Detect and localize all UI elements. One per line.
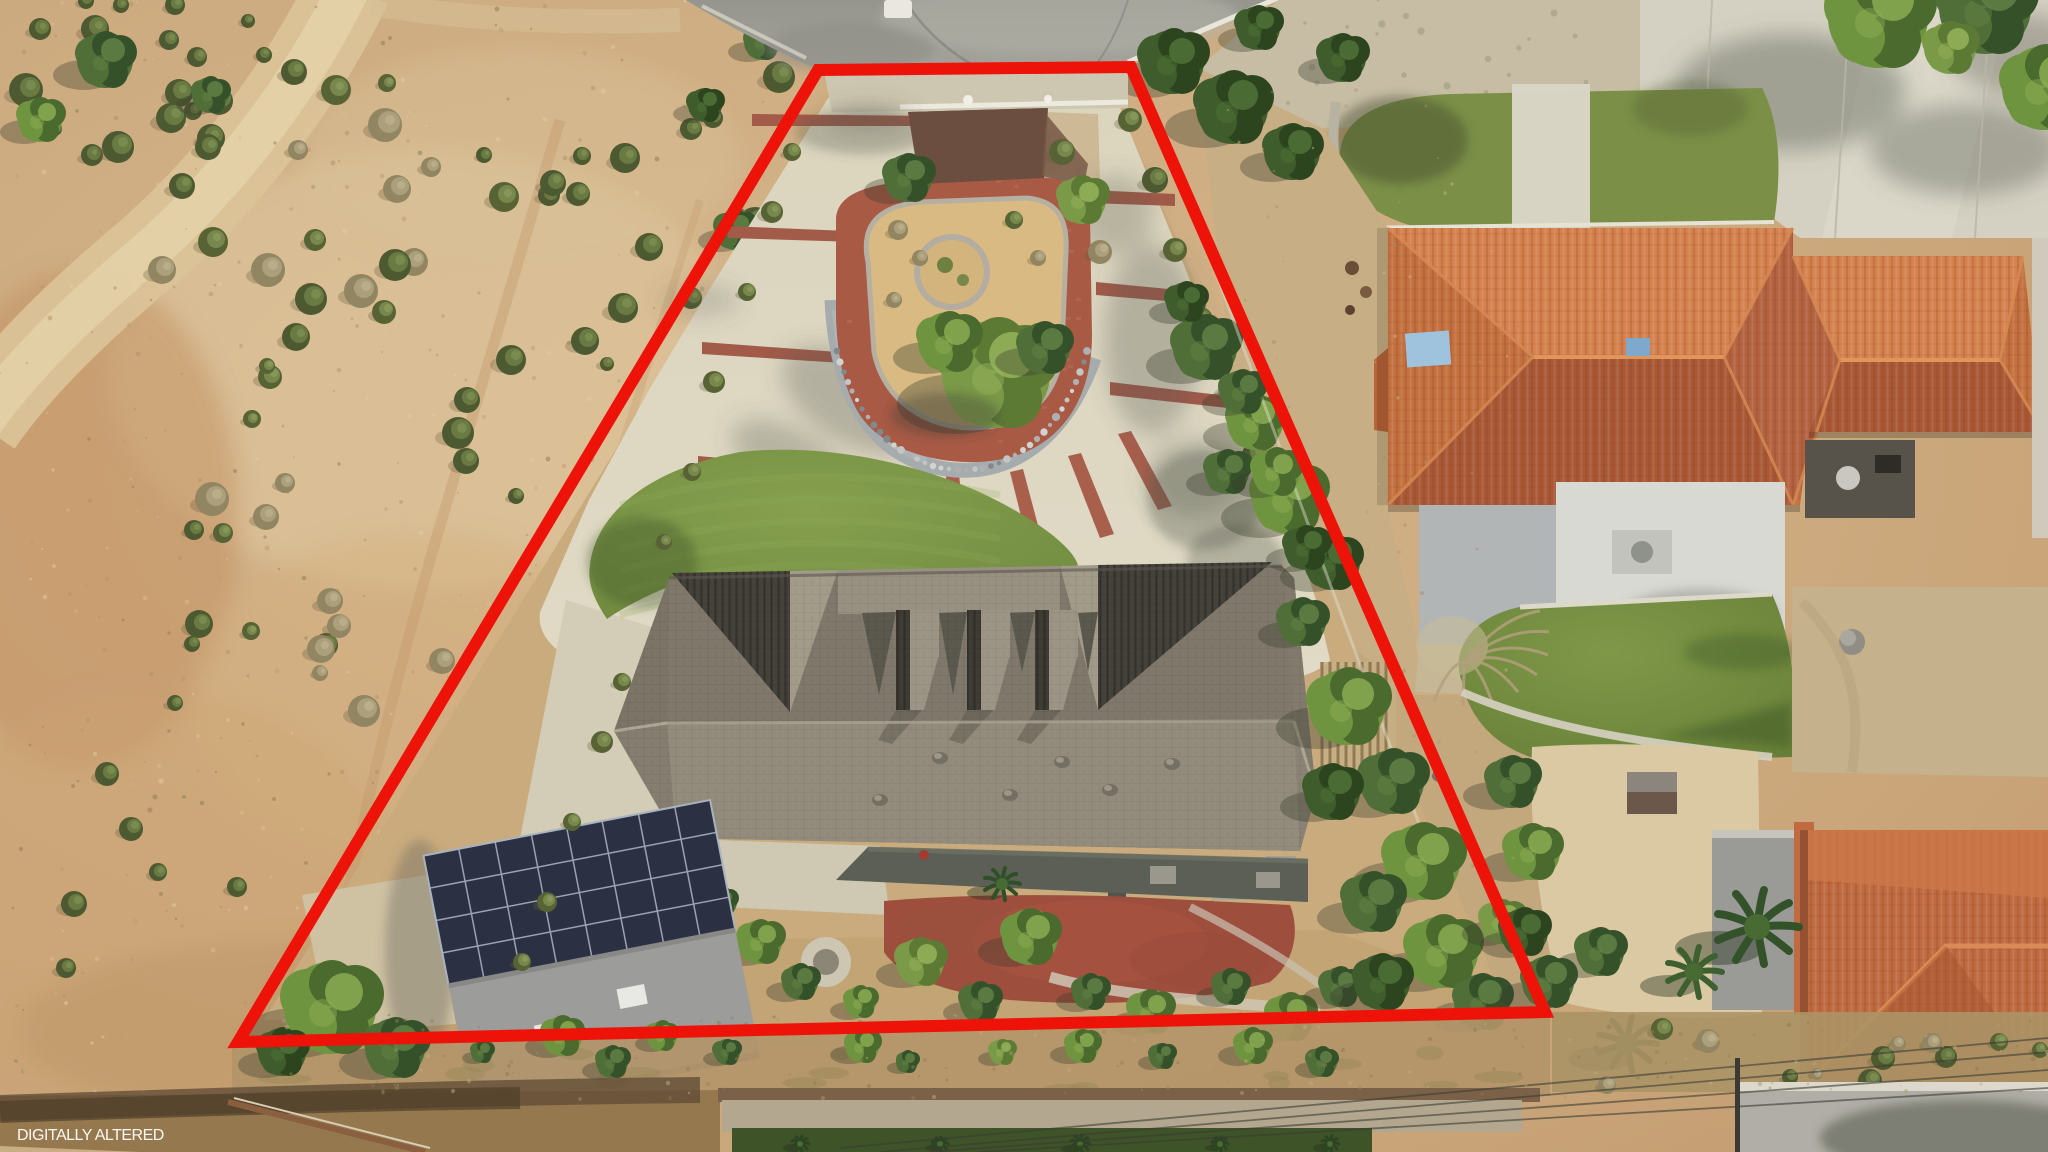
svg-text:DIGITALLY ALTERED: DIGITALLY ALTERED bbox=[17, 1127, 164, 1144]
